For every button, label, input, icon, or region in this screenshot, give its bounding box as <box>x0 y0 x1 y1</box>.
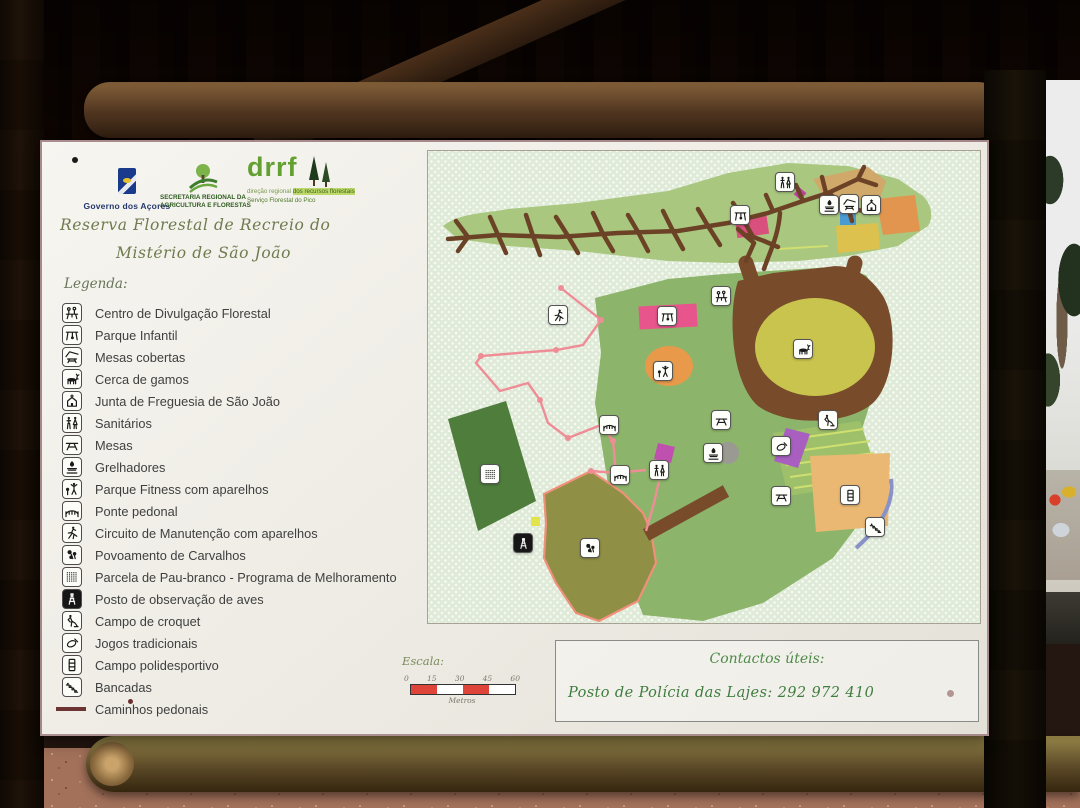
legend-item: Centro de Divulgação Florestal <box>62 302 422 324</box>
map-marker-fitness <box>653 361 673 381</box>
scale-tick: 60 <box>510 674 520 683</box>
top-log-rail <box>84 82 1004 138</box>
legend-item: Bancadas <box>62 676 422 698</box>
deer-icon <box>64 371 80 387</box>
legend-icon-box <box>62 633 82 653</box>
log-end-cap <box>90 742 134 786</box>
scale-tick: 45 <box>483 674 493 683</box>
centro-icon <box>714 289 729 304</box>
photo-of-park-sign: Governo dos Açores SECRETARIA REGIONAL D… <box>0 0 1080 808</box>
grid-icon <box>483 467 498 482</box>
picnic-table-icon <box>774 489 789 504</box>
tower-icon <box>64 591 80 607</box>
left-wooden-post <box>0 0 44 808</box>
covered-table-icon <box>842 197 857 212</box>
runner-icon <box>551 308 566 323</box>
deer-icon <box>796 342 811 357</box>
legend-item-label: Campo de croquet <box>95 614 200 629</box>
swing-icon <box>64 327 80 343</box>
legend-item: Sanitários <box>62 412 422 434</box>
map-marker-wc <box>649 460 669 480</box>
field-icon <box>64 657 80 673</box>
legend-item: Junta de Freguesia de São João <box>62 390 422 412</box>
legend-item: Povoamento de Carvalhos <box>62 544 422 566</box>
legend-list: Centro de Divulgação FlorestalParque Inf… <box>62 302 422 720</box>
legend-icon-box <box>62 677 82 697</box>
map-marker-centro <box>711 286 731 306</box>
legend-item: Mesas cobertas <box>62 346 422 368</box>
map-marker-deer <box>793 339 813 359</box>
park-map <box>427 150 981 624</box>
tree-swoosh-icon <box>188 162 218 194</box>
drrf-subtitle: direção regional dos recursos florestais… <box>247 188 377 205</box>
contacts-heading: Contactos úteis: <box>556 651 978 667</box>
map-marker-runner <box>548 305 568 325</box>
legend-icon-box <box>62 369 82 389</box>
legend-icon-box <box>62 567 82 587</box>
grill-icon <box>822 198 837 213</box>
map-marker-field <box>840 485 860 505</box>
bridge-icon <box>613 468 628 483</box>
bottom-log-rail <box>86 736 1080 792</box>
yellow-field-north <box>836 223 880 253</box>
legend-item: Circuito de Manutenção com aparelhos <box>62 522 422 544</box>
legend-item: Grelhadores <box>62 456 422 478</box>
leaves-icon <box>583 541 598 556</box>
legend-item-label: Campo polidesportivo <box>95 658 219 673</box>
sign-title-line2: Mistério de São João <box>116 244 291 262</box>
legend-item-label: Centro de Divulgação Florestal <box>95 306 271 321</box>
sign-panel: Governo dos Açores SECRETARIA REGIONAL D… <box>40 140 989 736</box>
map-marker-picnic-table <box>771 486 791 506</box>
legend-item-label: Parque Fitness com aparelhos <box>95 482 269 497</box>
acores-flag-icon <box>118 168 136 194</box>
scale-segment <box>489 685 515 694</box>
map-marker-bleachers <box>865 517 885 537</box>
deer-enclosure-field <box>755 298 875 396</box>
map-marker-quoits <box>771 436 791 456</box>
legend-item-label: Posto de observação de aves <box>95 592 264 607</box>
legend-icon-box <box>62 611 82 631</box>
orange-field-north <box>876 195 920 235</box>
tower-icon <box>516 536 531 551</box>
contacts-box: Contactos úteis: Posto de Polícia das La… <box>555 640 979 722</box>
quoits-icon <box>64 635 80 651</box>
map-marker-grill <box>703 443 723 463</box>
park-map-shapes <box>428 151 980 623</box>
legend-icon-box <box>62 655 82 675</box>
logo-drrf: drrf direção regional dos recursos flore… <box>247 154 377 205</box>
church-icon <box>864 198 879 213</box>
wc-icon <box>778 175 793 190</box>
grill-icon <box>706 446 721 461</box>
legend-item-label: Mesas <box>95 438 133 453</box>
map-marker-bridge <box>599 415 619 435</box>
wc-icon <box>652 463 667 478</box>
legend-icon-box <box>62 501 82 521</box>
legend-item-label: Parque Infantil <box>95 328 178 343</box>
legend-item: Parque Infantil <box>62 324 422 346</box>
panel-screw <box>72 157 78 163</box>
covered-table-icon <box>64 349 80 365</box>
legend-icon-box <box>62 545 82 565</box>
map-marker-church <box>861 195 881 215</box>
legend-item-label: Parcela de Pau-branco - Programa de Melh… <box>95 570 397 585</box>
runner-icon <box>64 525 80 541</box>
contacts-phone-line: Posto de Polícia das Lajes: 292 972 410 <box>568 685 874 701</box>
right-wooden-post <box>984 70 1046 808</box>
legend-item: Posto de observação de aves <box>62 588 422 610</box>
map-marker-bridge <box>610 465 630 485</box>
legend-item-label: Mesas cobertas <box>95 350 185 365</box>
church-icon <box>64 393 80 409</box>
map-marker-tower <box>513 533 533 553</box>
map-marker-grid <box>480 464 500 484</box>
fitness-icon <box>64 481 80 497</box>
map-marker-picnic-table <box>711 410 731 430</box>
trees-background <box>1040 120 1080 450</box>
map-marker-croquet <box>818 410 838 430</box>
field-icon <box>843 488 858 503</box>
bleachers-icon <box>64 679 80 695</box>
stone-wall-background <box>1040 592 1080 644</box>
legend-item-label: Jogos tradicionais <box>95 636 197 651</box>
legend-item-label: Junta de Freguesia de São João <box>95 394 280 409</box>
swing-icon <box>733 208 748 223</box>
legend-icon-box <box>62 457 82 477</box>
centro-icon <box>64 305 80 321</box>
legend-item-label: Grelhadores <box>95 460 165 475</box>
map-marker-leaves <box>580 538 600 558</box>
scale-bar <box>410 684 516 695</box>
leaves-icon <box>64 547 80 563</box>
legend-heading: Legenda: <box>64 276 128 292</box>
croquet-icon <box>64 613 80 629</box>
fitness-icon <box>656 364 671 379</box>
grid-icon <box>64 569 80 585</box>
wc-icon <box>64 415 80 431</box>
legend-item: Cerca de gamos <box>62 368 422 390</box>
legend-item-label: Sanitários <box>95 416 152 431</box>
drrf-wordmark: drrf <box>247 154 298 181</box>
legend-item-label: Ponte pedonal <box>95 504 178 519</box>
legend-item-label: Caminhos pedonais <box>95 702 208 717</box>
scale-tick: 15 <box>427 674 437 683</box>
legend-item: Caminhos pedonais <box>62 698 422 720</box>
swing-icon <box>660 309 675 324</box>
path-line-swatch <box>56 707 86 712</box>
bridge-icon <box>602 418 617 433</box>
legend-icon-box <box>62 303 82 323</box>
bridge-icon <box>64 503 80 519</box>
playground-background <box>1043 470 1080 580</box>
map-marker-grill <box>819 195 839 215</box>
legend-item: Parcela de Pau-branco - Programa de Melh… <box>62 566 422 588</box>
legend-icon-box <box>62 347 82 367</box>
legend-icon-box <box>62 413 82 433</box>
map-marker-wc <box>775 172 795 192</box>
legend-item-label: Circuito de Manutenção com aparelhos <box>95 526 318 541</box>
legend-item: Mesas <box>62 434 422 456</box>
scale-unit: Metros <box>410 696 514 705</box>
scale-segment <box>463 685 489 694</box>
map-marker-swing <box>730 205 750 225</box>
legend-item: Jogos tradicionais <box>62 632 422 654</box>
scale-tick: 0 <box>404 674 409 683</box>
scale-heading: Escala: <box>402 654 444 668</box>
croquet-icon <box>821 413 836 428</box>
scale-tick-labels: 015304560 <box>404 674 520 683</box>
legend-item: Ponte pedonal <box>62 500 422 522</box>
legend-icon-box <box>62 391 82 411</box>
scale-segment <box>411 685 437 694</box>
picnic-table-icon <box>64 437 80 453</box>
legend-icon-box <box>62 435 82 455</box>
legend-item: Campo de croquet <box>62 610 422 632</box>
scale-segment <box>437 685 463 694</box>
scale-tick: 30 <box>455 674 465 683</box>
legend-icon-box <box>62 589 82 609</box>
legend-item: Campo polidesportivo <box>62 654 422 676</box>
legend-icon-box <box>62 325 82 345</box>
legend-icon-box <box>62 479 82 499</box>
bleachers-icon <box>868 520 883 535</box>
legend-icon-box <box>62 523 82 543</box>
legend-item-label: Cerca de gamos <box>95 372 189 387</box>
legend-item-label: Povoamento de Carvalhos <box>95 548 246 563</box>
picnic-table-icon <box>714 413 729 428</box>
sign-title-line1: Reserva Florestal de Recreio do <box>60 216 330 234</box>
map-marker-covered-table <box>839 194 859 214</box>
quoits-icon <box>774 439 789 454</box>
drrf-trees-icon <box>306 154 334 188</box>
legend-item-label: Bancadas <box>95 680 152 695</box>
map-marker-swing <box>657 306 677 326</box>
legend-item: Parque Fitness com aparelhos <box>62 478 422 500</box>
grill-icon <box>64 459 80 475</box>
yellow-marker-square <box>531 517 540 526</box>
